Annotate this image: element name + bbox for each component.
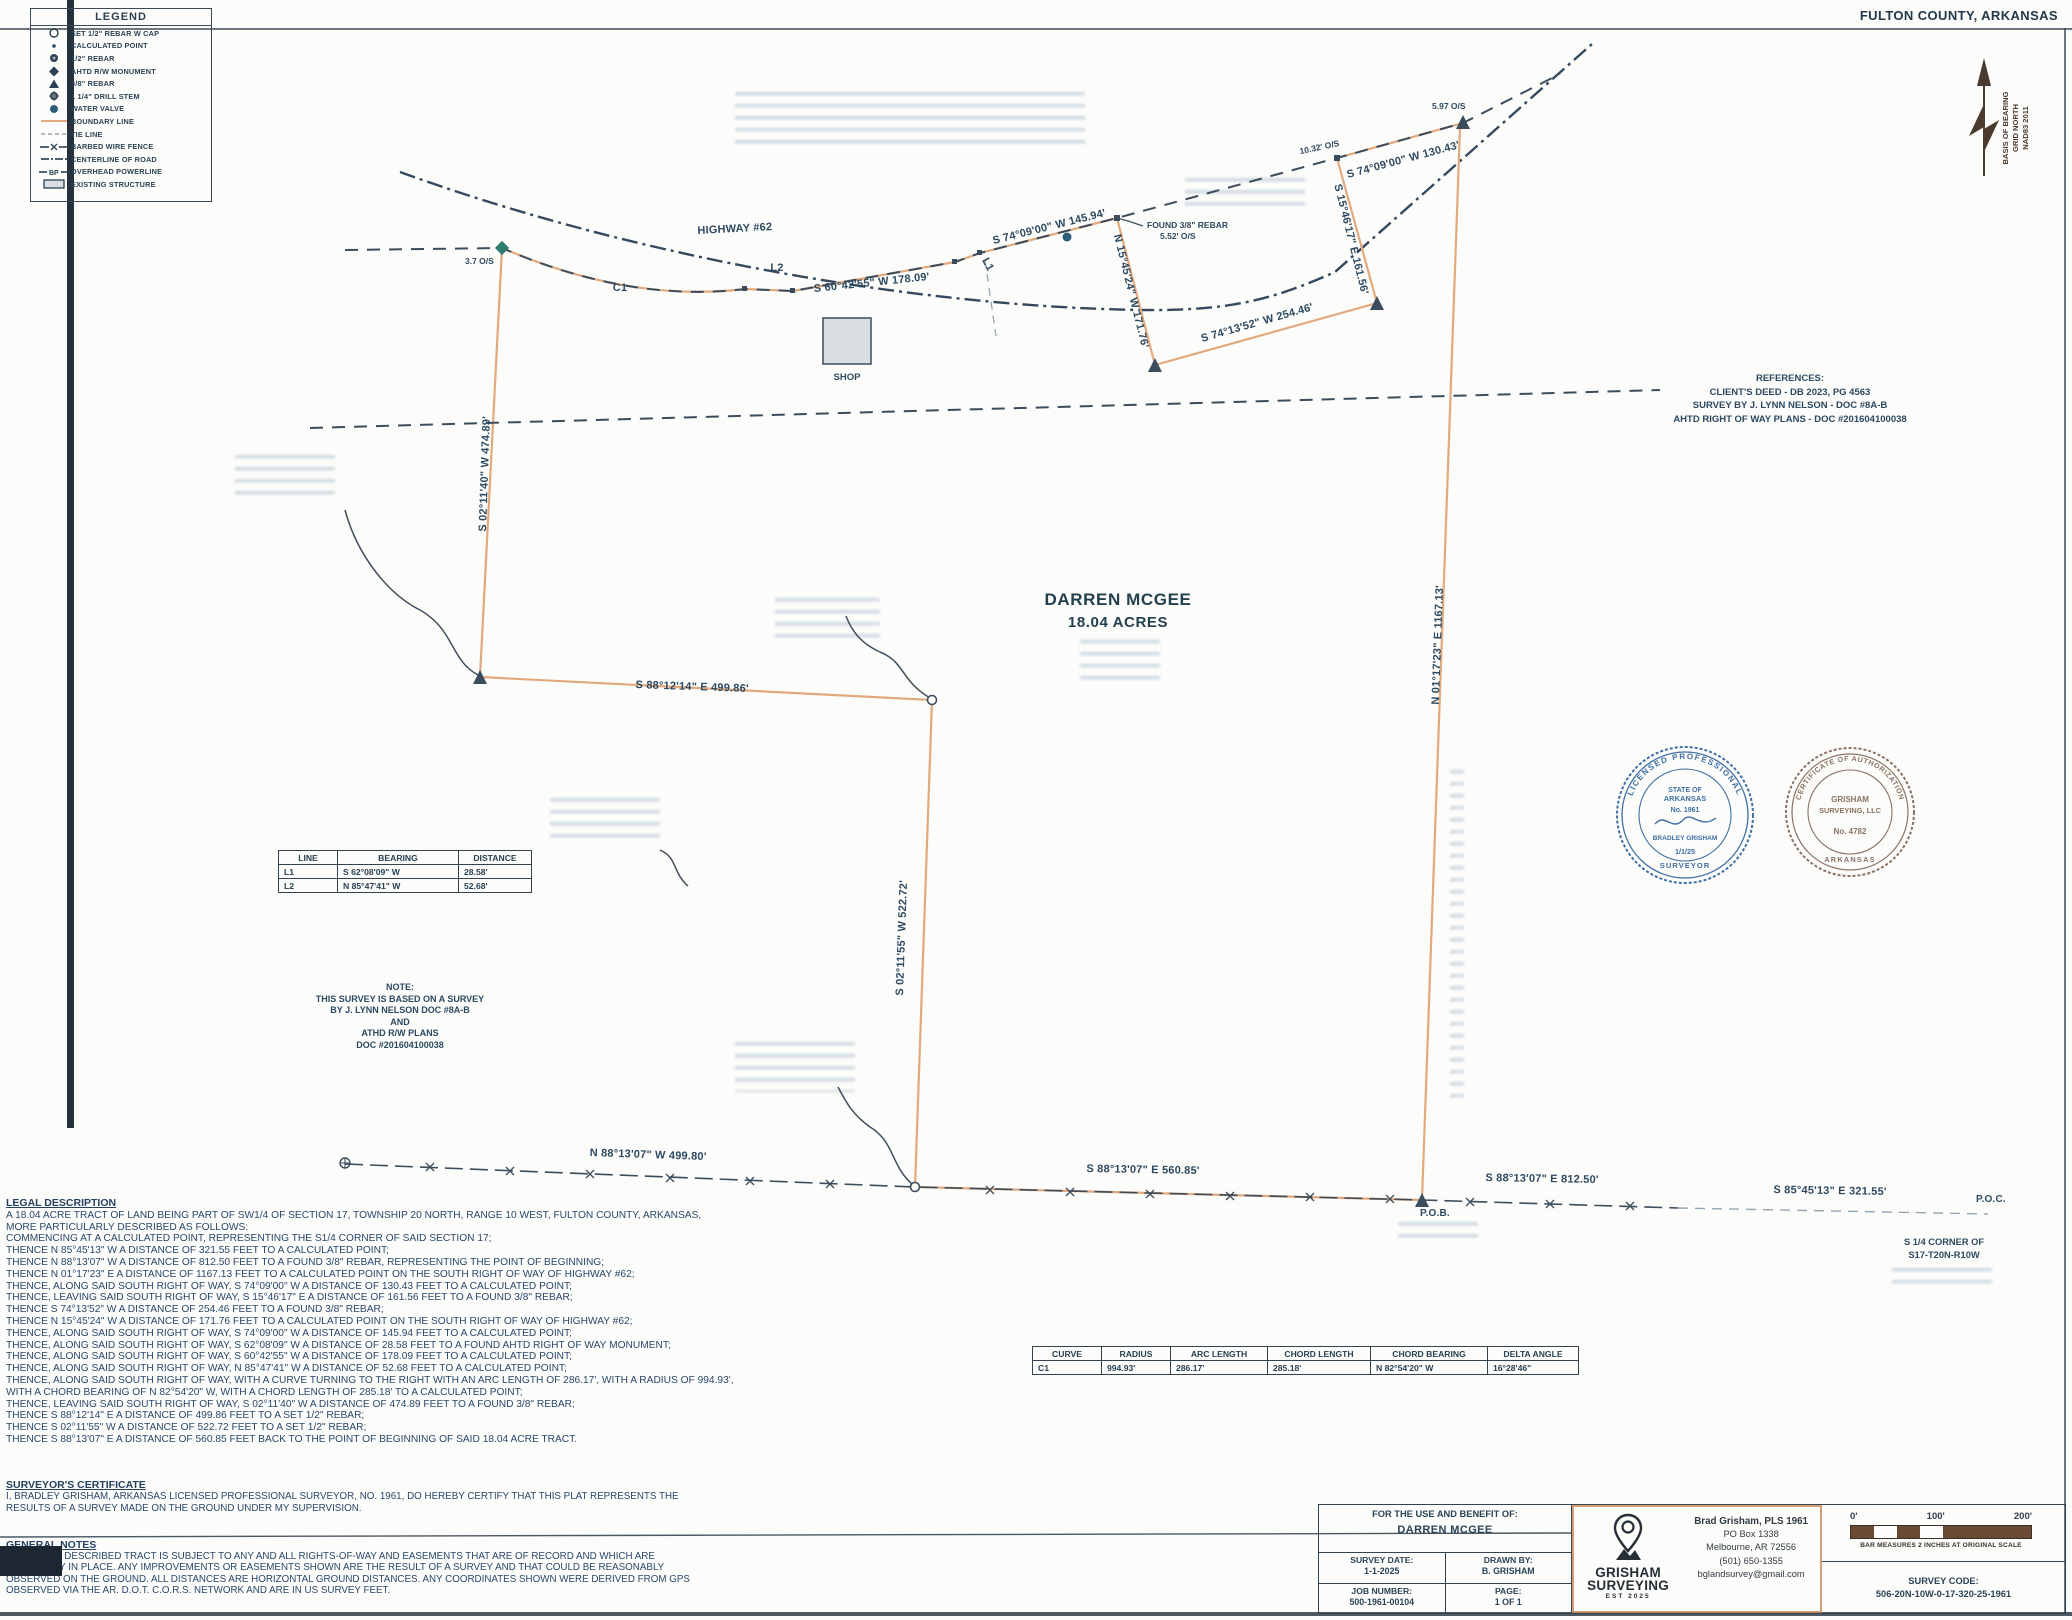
seal-date: 1/1/25 xyxy=(1675,847,1695,856)
offset-597: 5.97 O/S xyxy=(1432,101,1466,111)
scale-tick-200: 200' xyxy=(2014,1511,2032,1522)
col-radius: RADIUS xyxy=(1102,1347,1171,1361)
shop-label: SHOP xyxy=(834,372,862,383)
powerline-mid xyxy=(310,390,1660,428)
col-chord-bearing: CHORD BEARING xyxy=(1371,1347,1488,1361)
legal-description: LEGAL DESCRIPTION A 18.04 ACRE TRACT OF … xyxy=(6,1198,796,1446)
contact-city: Melbourne, AR 72556 xyxy=(1682,1541,1820,1554)
set-rebar-icon xyxy=(37,28,71,38)
legend-label: AHTD R/W MONUMENT xyxy=(71,67,156,76)
job-number-label: JOB NUMBER: xyxy=(1319,1586,1445,1596)
legal-line: WITH A CHORD BEARING OF N 82°54'20" W, W… xyxy=(6,1387,796,1399)
half-rebar-icon xyxy=(37,53,71,63)
table-header-row: LINE BEARING DISTANCE xyxy=(279,851,532,865)
calculated-point-icon xyxy=(37,41,71,51)
seal-signature xyxy=(1655,817,1716,824)
county-title: FULTON COUNTY, ARKANSAS xyxy=(1860,8,2058,23)
cell: N 85°47'41" W xyxy=(338,879,459,893)
table-row: L2 N 85°47'41" W 52.68' xyxy=(279,879,532,893)
surveyor-seal: LICENSED PROFESSIONAL STATE OF ARKANSAS … xyxy=(1617,747,1753,883)
firm-section: GRISHAM SURVEYING EST 2025 Brad Grisham,… xyxy=(1572,1505,1822,1613)
benefit-section: FOR THE USE AND BENEFIT OF: DARREN MCGEE xyxy=(1319,1505,1571,1553)
tie-line-icon xyxy=(37,131,71,137)
bearing-n8813: N 88°13'07" W 499.80' xyxy=(589,1147,706,1163)
page-label: PAGE: xyxy=(1446,1586,1572,1596)
col-curve: CURVE xyxy=(1033,1347,1102,1361)
bearing-s8545: S 85°45'13" E 321.55' xyxy=(1773,1184,1887,1198)
auth-line1: GRISHAM xyxy=(1831,795,1869,804)
general-notes-line: THE ABOVE DESCRIBED TRACT IS SUBJECT TO … xyxy=(6,1551,866,1562)
legend-item: CALCULATED POINT xyxy=(31,40,211,53)
cell: 286.17' xyxy=(1171,1361,1268,1375)
legend-item: 1 1/4" DRILL STEM xyxy=(31,90,211,103)
cell: L1 xyxy=(279,865,338,879)
barbed-fence-icon xyxy=(37,142,71,152)
legal-line: THENCE N 85°45'13" W A DISTANCE OF 321.5… xyxy=(6,1245,796,1257)
scale-ticks: 0' 100' 200' xyxy=(1850,1511,2032,1522)
drawn-by-cell: DRAWN BY: B. GRISHAM xyxy=(1445,1553,1572,1582)
seal-state1: STATE OF xyxy=(1668,787,1702,794)
scale-bar: 0' 100' 200' BAR MEASURES 2 INCHES AT OR… xyxy=(1850,1511,2032,1549)
legend-label: TIE LINE xyxy=(71,130,103,139)
legal-line: THENCE S 88°13'07" E A DISTANCE OF 560.8… xyxy=(6,1434,796,1446)
certificate-line: I, BRADLEY GRISHAM, ARKANSAS LICENSED PR… xyxy=(6,1491,866,1502)
title-block-row: JOB NUMBER: 500-1961-00104 PAGE: 1 OF 1 xyxy=(1319,1584,1571,1613)
benefit-label: FOR THE USE AND BENEFIT OF: xyxy=(1319,1509,1571,1519)
col-delta: DELTA ANGLE xyxy=(1488,1347,1579,1361)
references-block: REFERENCES: CLIENT'S DEED - DB 2023, PG … xyxy=(1620,372,1960,426)
legend-label: OVERHEAD POWERLINE xyxy=(71,167,162,176)
quarter-corner-marker xyxy=(340,1158,350,1168)
legal-line: COMMENCING AT A CALCULATED POINT, REPRES… xyxy=(6,1233,796,1245)
firm-logo: GRISHAM SURVEYING EST 2025 xyxy=(1574,1507,1682,1611)
poc-label: P.O.C. xyxy=(1976,1194,2006,1205)
legend-item: 3/8" REBAR xyxy=(31,77,211,90)
note-line: ATHD R/W PLANS xyxy=(295,1028,505,1040)
title-block-row: SURVEY DATE: 1-1-2025 DRAWN BY: B. GRISH… xyxy=(1319,1553,1571,1583)
note-line: AND xyxy=(295,1017,505,1029)
col-chord-length: CHORD LENGTH xyxy=(1268,1347,1371,1361)
cell: 994.93' xyxy=(1102,1361,1171,1375)
legal-title: LEGAL DESCRIPTION xyxy=(6,1198,796,1210)
legend-item: 1/2" REBAR xyxy=(31,52,211,65)
scale-tick-0: 0' xyxy=(1850,1511,1858,1522)
survey-code-value: 506-20N-10W-0-17-320-25-1961 xyxy=(1822,1588,2065,1601)
highway-centerline xyxy=(400,44,1592,310)
line-l2-label: L2 xyxy=(770,262,783,274)
legend-item: SET 1/2" REBAR W CAP xyxy=(31,27,211,40)
cell: S 62°08'09" W xyxy=(338,865,459,879)
acreage-label: 18.04 ACRES xyxy=(1068,614,1168,631)
callout-squiggle xyxy=(838,1087,913,1185)
legend-box: LEGEND SET 1/2" REBAR W CAP CALCULATED P… xyxy=(30,8,212,202)
legend-label: SET 1/2" REBAR W CAP xyxy=(71,29,159,38)
divider xyxy=(1822,1561,2065,1562)
general-notes-title: GENERAL NOTES xyxy=(6,1540,866,1551)
powerline-icon: BP xyxy=(37,167,71,177)
legend-label: 1/2" REBAR xyxy=(71,54,115,63)
curve-table: CURVE RADIUS ARC LENGTH CHORD LENGTH CHO… xyxy=(1032,1346,1579,1375)
general-notes: GENERAL NOTES THE ABOVE DESCRIBED TRACT … xyxy=(6,1540,866,1596)
ahtd-monument-icon xyxy=(37,66,71,77)
col-distance: DISTANCE xyxy=(459,851,532,865)
svg-text:CERTIFICATE OF AUTHORIZATION: CERTIFICATE OF AUTHORIZATION xyxy=(1794,754,1907,801)
legal-line: MORE PARTICULARLY DESCRIBED AS FOLLOWS: xyxy=(6,1222,796,1234)
general-notes-line: PHYSICALLY IN PLACE. ANY IMPROVEMENTS OR… xyxy=(6,1562,866,1573)
drawn-by-value: B. GRISHAM xyxy=(1446,1566,1572,1576)
legend-label: BOUNDARY LINE xyxy=(71,117,134,126)
contact-email: bglandsurvey@gmail.com xyxy=(1682,1568,1820,1581)
boundary-west-south xyxy=(480,248,1422,1200)
location-pin-icon xyxy=(1608,1513,1648,1561)
firm-name2: SURVEYING xyxy=(1574,1579,1682,1592)
reference-line: AHTD RIGHT OF WAY PLANS - DOC #201604100… xyxy=(1620,413,1960,427)
basis-line1: BASIS OF BEARING xyxy=(2001,91,2010,164)
col-line: LINE xyxy=(279,851,338,865)
legal-line: THENCE N 01°17'23" E A DISTANCE OF 1167.… xyxy=(6,1269,796,1281)
found-rebar-leader xyxy=(1117,218,1143,226)
legend-label: 1 1/4" DRILL STEM xyxy=(71,92,140,101)
found-rebar-note2: 5.52' O/S xyxy=(1160,231,1196,241)
authorization-seal: CERTIFICATE OF AUTHORIZATION GRISHAM SUR… xyxy=(1786,748,1914,876)
seal-ring-bottom: SURVEYOR xyxy=(1660,861,1710,870)
general-notes-line: OBSERVED VIA THE AR. D.O.T. C.O.R.S. NET… xyxy=(6,1585,866,1596)
legend-item: BP OVERHEAD POWERLINE xyxy=(31,166,211,179)
cell: N 82°54'20" W xyxy=(1371,1361,1488,1375)
bearing-s0211-522: S 02°11'55" W 522.72' xyxy=(894,880,910,996)
bearing-s7409-145: S 74°09'00" W 145.94' xyxy=(991,207,1107,247)
col-bearing: BEARING xyxy=(338,851,459,865)
water-valve-marker xyxy=(1063,233,1072,242)
owner-label: DARREN MCGEE xyxy=(1045,590,1192,609)
note-line: NOTE: xyxy=(295,982,505,994)
basis-of-bearing-note: BASIS OF BEARING GRID NORTH NAD83 2011 xyxy=(2001,91,2030,164)
legend-item: CENTERLINE OF ROAD xyxy=(31,153,211,166)
bp-glyph: BP xyxy=(49,170,59,177)
table-header-row: CURVE RADIUS ARC LENGTH CHORD LENGTH CHO… xyxy=(1033,1347,1579,1361)
rebar-triangle-icon xyxy=(37,79,71,89)
bearing-s7413: S 74°13'52" W 254.46' xyxy=(1200,301,1315,345)
surveyor-certificate: SURVEYOR'S CERTIFICATE I, BRADLEY GRISHA… xyxy=(6,1480,866,1514)
tie-line-poc xyxy=(1678,1208,1988,1214)
legal-line: THENCE S 74°13'52" W A DISTANCE OF 254.4… xyxy=(6,1304,796,1316)
legend-item: AHTD R/W MONUMENT xyxy=(31,65,211,78)
callout-squiggle xyxy=(846,616,930,698)
legal-line: THENCE, ALONG SAID SOUTH RIGHT OF WAY, N… xyxy=(6,1363,796,1375)
legend-item: BOUNDARY LINE xyxy=(31,115,211,128)
legal-line: THENCE N 88°13'07" W A DISTANCE OF 812.5… xyxy=(6,1257,796,1269)
cell: 16°28'46" xyxy=(1488,1361,1579,1375)
quarter-corner-label2: S17-T20N-R10W xyxy=(1908,1250,1980,1260)
page-value: 1 OF 1 xyxy=(1446,1597,1572,1607)
legend-label: CALCULATED POINT xyxy=(71,41,148,50)
set-rebar-marker xyxy=(911,1183,920,1192)
ahtd-monument-marker xyxy=(495,241,509,255)
legal-line: THENCE, ALONG SAID SOUTH RIGHT OF WAY, S… xyxy=(6,1351,796,1363)
table-row: C1 994.93' 286.17' 285.18' N 82°54'20" W… xyxy=(1033,1361,1579,1375)
rebar-triangle xyxy=(1456,115,1470,129)
basis-line3: NAD83 2011 xyxy=(2021,105,2030,149)
survey-date-label: SURVEY DATE: xyxy=(1319,1555,1445,1565)
offset-1032: 10.32' O/S xyxy=(1299,138,1341,156)
legend-title: LEGEND xyxy=(31,11,211,26)
col-arc: ARC LENGTH xyxy=(1171,1347,1268,1361)
job-number-value: 500-1961-00104 xyxy=(1319,1597,1445,1607)
bearing-s8813-812: S 88°13'07" E 812.50' xyxy=(1485,1172,1599,1186)
note-block: NOTE: THIS SURVEY IS BASED ON A SURVEY B… xyxy=(295,982,505,1051)
set-rebar-marker xyxy=(928,696,937,705)
bearing-s1546: S 15°46'17" E 161.56' xyxy=(1331,183,1370,296)
seal-name: BRADLEY GRISHAM xyxy=(1653,835,1718,842)
contact-phone: (501) 650-1355 xyxy=(1682,1555,1820,1568)
note-line: BY J. LYNN NELSON DOC #8A-B xyxy=(295,1005,505,1017)
title-block-left: FOR THE USE AND BENEFIT OF: DARREN MCGEE… xyxy=(1319,1505,1572,1613)
line-table: LINE BEARING DISTANCE L1 S 62°08'09" W 2… xyxy=(278,850,532,893)
bearing-s6042: S 60°42'55" W 178.09' xyxy=(813,271,930,295)
scale-tick-100: 100' xyxy=(1927,1511,1945,1522)
cell: C1 xyxy=(1033,1361,1102,1375)
reference-line: CLIENT'S DEED - DB 2023, PG 4563 xyxy=(1620,386,1960,400)
legend-item: TIE LINE xyxy=(31,128,211,141)
found-rebar-note1: FOUND 3/8" REBAR xyxy=(1147,220,1228,230)
seal-number: No. 1961 xyxy=(1671,807,1700,814)
offset-37: 3.7 O/S xyxy=(465,256,494,266)
bearing-n0117: N 01°17'23" E 1167.13' xyxy=(1430,585,1446,705)
centerline-icon xyxy=(37,156,71,162)
seal-state2: ARKANSAS xyxy=(1664,794,1707,803)
bearing-s8812: S 88°12'14" E 499.86' xyxy=(635,679,749,695)
cell: 28.58' xyxy=(459,865,532,879)
legend-label: 3/8" REBAR xyxy=(71,79,115,88)
cell: 52.68' xyxy=(459,879,532,893)
pob-label: P.O.B. xyxy=(1420,1208,1450,1219)
water-valve-icon xyxy=(37,104,71,114)
table-row: L1 S 62°08'09" W 28.58' xyxy=(279,865,532,879)
references-title: REFERENCES: xyxy=(1620,372,1960,386)
auth-line2: SURVEYING, LLC xyxy=(1819,806,1882,815)
legend-label: WATER VALVE xyxy=(71,104,124,113)
bearing-s0211-474: S 02°11'40" W 474.89' xyxy=(477,416,493,532)
benefit-name: DARREN MCGEE xyxy=(1319,1524,1571,1536)
general-notes-line: OBSERVED ON THE GROUND. ALL DISTANCES AR… xyxy=(6,1574,866,1585)
certificate-title: SURVEYOR'S CERTIFICATE xyxy=(6,1480,866,1491)
rebar-triangle xyxy=(1370,296,1384,310)
note-line: DOC #201604100038 xyxy=(295,1040,505,1052)
page-cell: PAGE: 1 OF 1 xyxy=(1445,1584,1572,1613)
legal-line: THENCE, ALONG SAID SOUTH RIGHT OF WAY, S… xyxy=(6,1328,796,1340)
legal-line: THENCE S 02°11'55" W A DISTANCE OF 522.7… xyxy=(6,1422,796,1434)
survey-date-cell: SURVEY DATE: 1-1-2025 xyxy=(1319,1553,1445,1582)
drill-stem-icon xyxy=(37,91,71,101)
note-line: THIS SURVEY IS BASED ON A SURVEY xyxy=(295,994,505,1006)
legal-line: THENCE, ALONG SAID SOUTH RIGHT OF WAY, S… xyxy=(6,1281,796,1293)
survey-code: SURVEY CODE: 506-20N-10W-0-17-320-25-196… xyxy=(1822,1575,2065,1601)
legal-line: THENCE, LEAVING SAID SOUTH RIGHT OF WAY,… xyxy=(6,1292,796,1304)
highway-label: HIGHWAY #62 xyxy=(697,221,772,237)
firm-contact: Brad Grisham, PLS 1961 PO Box 1338 Melbo… xyxy=(1682,1507,1820,1611)
bearing-s8813-560: S 88°13'07" E 560.85' xyxy=(1086,1163,1200,1177)
drawn-by-label: DRAWN BY: xyxy=(1446,1555,1572,1565)
auth-ring-text: CERTIFICATE OF AUTHORIZATION xyxy=(1794,754,1907,801)
legal-line: THENCE N 15°45'24" W A DISTANCE OF 171.7… xyxy=(6,1316,796,1328)
callout-squiggle xyxy=(345,510,478,675)
scan-blotch xyxy=(0,1546,62,1576)
boundary-line-icon xyxy=(37,118,71,124)
firm-est: EST 2025 xyxy=(1574,1593,1682,1600)
legend-label: BARBED WIRE FENCE xyxy=(71,142,153,151)
legal-line: THENCE, ALONG SAID SOUTH RIGHT OF WAY, S… xyxy=(6,1340,796,1352)
line-l1-label: L1 xyxy=(979,256,996,273)
quarter-corner-label1: S 1/4 CORNER OF xyxy=(1904,1237,1984,1247)
scale-section: 0' 100' 200' BAR MEASURES 2 INCHES AT OR… xyxy=(1822,1505,2065,1613)
auth-ring-bottom: ARKANSAS xyxy=(1824,855,1875,864)
contact-name: Brad Grisham, PLS 1961 xyxy=(1682,1515,1820,1528)
rebar-triangle xyxy=(1148,358,1162,372)
contact-pobox: PO Box 1338 xyxy=(1682,1528,1820,1541)
legend-item: WATER VALVE xyxy=(31,103,211,116)
cell: 285.18' xyxy=(1268,1361,1371,1375)
legal-line: THENCE, LEAVING SAID SOUTH RIGHT OF WAY,… xyxy=(6,1399,796,1411)
callout-squiggle xyxy=(660,850,688,886)
curve-c1-label: C1 xyxy=(613,282,627,294)
survey-plat-page: BASIS OF BEARING GRID NORTH NAD83 2011 L… xyxy=(0,0,2072,1620)
basis-line2: GRID NORTH xyxy=(2011,104,2020,152)
certificate-line: RESULTS OF A SURVEY MADE ON THE GROUND U… xyxy=(6,1503,866,1514)
scale-bar-graphic xyxy=(1850,1525,2032,1539)
survey-code-label: SURVEY CODE: xyxy=(1822,1575,2065,1588)
legend-item: BARBED WIRE FENCE xyxy=(31,140,211,153)
structure-icon xyxy=(37,179,71,189)
north-arrow xyxy=(1969,58,1999,176)
survey-date-value: 1-1-2025 xyxy=(1319,1566,1445,1576)
cell: L2 xyxy=(279,879,338,893)
scale-note: BAR MEASURES 2 INCHES AT ORIGINAL SCALE xyxy=(1850,1542,2032,1549)
legend-label: CENTERLINE OF ROAD xyxy=(71,155,157,164)
job-number-cell: JOB NUMBER: 500-1961-00104 xyxy=(1319,1584,1445,1613)
shop-structure xyxy=(823,318,871,364)
auth-number: No. 4782 xyxy=(1834,827,1867,836)
reference-line: SURVEY BY J. LYNN NELSON - DOC #8A-B xyxy=(1620,399,1960,413)
legend-label: EXISTING STRUCTURE xyxy=(71,180,156,189)
legal-line: THENCE S 88°12'14" E A DISTANCE OF 499.8… xyxy=(6,1410,796,1422)
legal-line: A 18.04 ACRE TRACT OF LAND BEING PART OF… xyxy=(6,1210,796,1222)
legend-item: EXISTING STRUCTURE xyxy=(31,178,211,191)
bearing-n1545: N 15°45'24" W 171.76' xyxy=(1111,233,1151,350)
legal-line: THENCE, ALONG SAID SOUTH RIGHT OF WAY, W… xyxy=(6,1375,796,1387)
title-block: FOR THE USE AND BENEFIT OF: DARREN MCGEE… xyxy=(1318,1504,2066,1614)
